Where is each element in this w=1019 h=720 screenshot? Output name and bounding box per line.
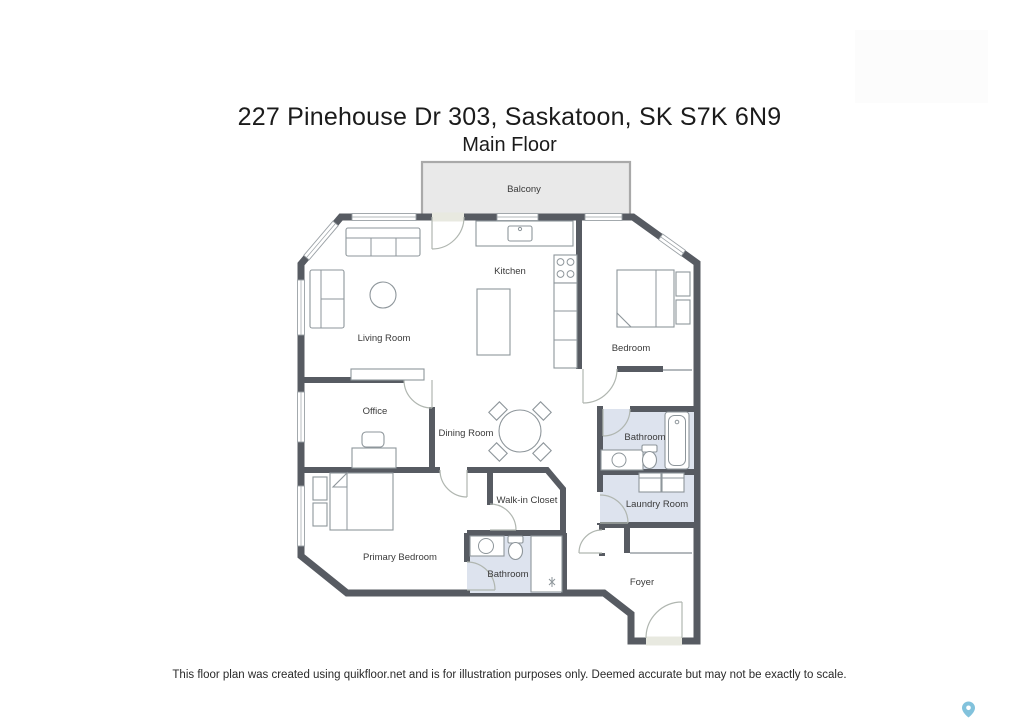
window-chamfer-top-left (304, 221, 338, 260)
balcony-door (432, 217, 464, 249)
room-label-bathroom2: Bathroom (487, 569, 528, 580)
coffee-table (370, 282, 396, 308)
kitchen-lower-counter (554, 283, 577, 368)
office-desk (352, 448, 396, 468)
room-label-dining-room: Dining Room (439, 428, 494, 439)
foyer-hall-door (579, 530, 602, 553)
kitchen-island (477, 289, 510, 355)
washer-dryer (639, 473, 684, 492)
room-label-primary-bedroom: Primary Bedroom (363, 552, 437, 563)
entry-door (646, 602, 682, 638)
window-kitchen-top-1 (497, 214, 538, 221)
nightstand (676, 272, 690, 296)
loveseat (310, 270, 344, 328)
kitchen-counter (476, 221, 573, 246)
room-label-walkin-closet: Walk-in Closet (497, 495, 558, 506)
walkin-closet-door (490, 504, 516, 530)
floor-plan-page: 227 Pinehouse Dr 303, Saskatoon, SK S7K … (0, 0, 1019, 720)
sofa (346, 228, 420, 256)
window-living-left (298, 280, 305, 335)
dining-table (499, 410, 541, 452)
bathtub-icon (665, 412, 689, 469)
map-pin-icon[interactable] (962, 702, 975, 718)
floor-plan-drawing: Balcony (0, 0, 1019, 720)
toilet-icon (642, 445, 657, 469)
room-label-bedroom: Bedroom (612, 343, 651, 354)
toilet-icon (508, 536, 523, 560)
balcony-door-opening (432, 213, 464, 222)
primary-bedroom-door (440, 470, 467, 497)
office-door (404, 380, 432, 408)
dining-set (489, 402, 551, 461)
room-label-balcony: Balcony (507, 184, 541, 195)
room-label-foyer: Foyer (630, 577, 654, 588)
room-label-living-room: Living Room (358, 333, 411, 344)
balcony-area: Balcony (422, 162, 630, 218)
room-label-office: Office (363, 406, 388, 417)
kitchen-sink (508, 226, 532, 241)
room-label-bathroom: Bathroom (624, 432, 665, 443)
room-label-laundry-room: Laundry Room (626, 499, 688, 510)
nightstand (313, 503, 327, 526)
room-label-kitchen: Kitchen (494, 266, 526, 277)
bedroom-door (583, 369, 617, 403)
primary-bed (330, 473, 393, 530)
window-chamfer-top-right (659, 234, 686, 256)
shower-stall (531, 536, 562, 592)
window-living-top (352, 214, 416, 221)
bedroom-bed (617, 270, 674, 327)
office-chair (362, 432, 384, 447)
window-primary-left (298, 486, 305, 546)
entry-door-opening (646, 637, 682, 646)
window-kitchen-top-2 (585, 214, 622, 221)
nightstand (676, 300, 690, 324)
stove (554, 255, 577, 283)
window-office-left (298, 392, 305, 442)
nightstand (313, 477, 327, 500)
bathroom-vanity (601, 450, 643, 470)
tv-stand (351, 369, 424, 380)
disclaimer-text: This floor plan was created using quikfl… (0, 669, 1019, 681)
